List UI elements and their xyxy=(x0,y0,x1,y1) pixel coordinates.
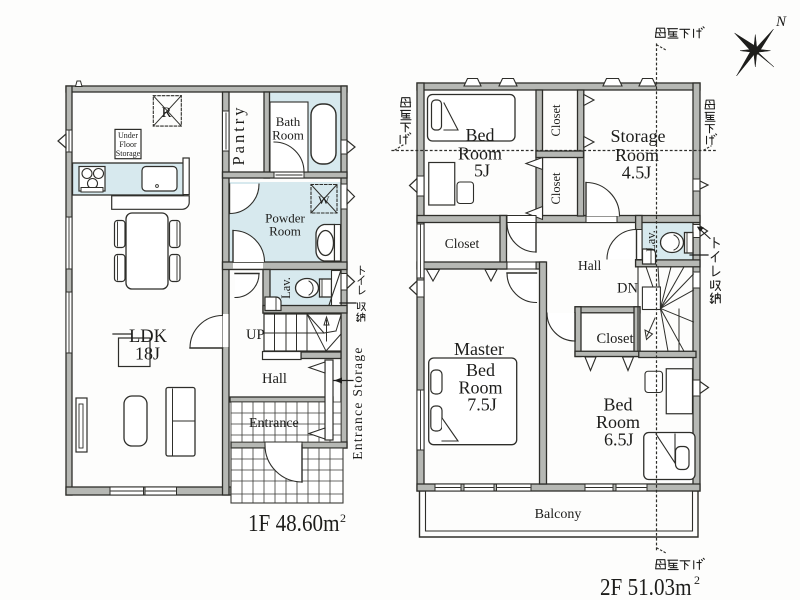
svg-text:6.5J: 6.5J xyxy=(604,430,634,450)
svg-text:DN: DN xyxy=(617,281,638,297)
svg-text:4.5J: 4.5J xyxy=(622,163,652,183)
svg-text:Storage: Storage xyxy=(116,149,141,158)
svg-text:1F 48.60m: 1F 48.60m xyxy=(248,510,340,537)
svg-text:Room: Room xyxy=(272,128,304,143)
svg-text:Lav.: Lav. xyxy=(279,277,293,299)
svg-text:Closet: Closet xyxy=(445,236,480,251)
svg-text:UP: UP xyxy=(246,327,265,343)
svg-text:R: R xyxy=(161,105,171,121)
svg-text:5J: 5J xyxy=(474,161,490,181)
svg-text:Under: Under xyxy=(118,131,138,140)
svg-text:18J: 18J xyxy=(135,344,160,364)
svg-text:2F 51.03m: 2F 51.03m xyxy=(600,574,692,600)
svg-text:Closet: Closet xyxy=(549,172,563,204)
svg-text:N: N xyxy=(775,14,787,30)
svg-text:Bed: Bed xyxy=(466,125,495,145)
svg-text:Entrance: Entrance xyxy=(249,416,299,431)
svg-text:W: W xyxy=(318,193,330,207)
svg-text:Pantry: Pantry xyxy=(229,104,248,165)
svg-text:2: 2 xyxy=(340,511,346,525)
svg-text:7.5J: 7.5J xyxy=(467,395,497,415)
svg-text:2: 2 xyxy=(694,573,700,587)
svg-text:Master: Master xyxy=(454,339,504,359)
svg-text:Closet: Closet xyxy=(549,104,563,136)
svg-text:Hall: Hall xyxy=(262,371,287,387)
svg-text:Entrance Storage: Entrance Storage xyxy=(350,346,365,459)
svg-text:Lav.: Lav. xyxy=(644,230,658,252)
svg-text:Closet: Closet xyxy=(596,331,633,347)
svg-text:Floor: Floor xyxy=(119,140,137,149)
svg-text:Balcony: Balcony xyxy=(535,507,582,522)
svg-text:Storage: Storage xyxy=(611,126,666,146)
svg-text:Room: Room xyxy=(269,224,301,239)
svg-text:Hall: Hall xyxy=(578,258,601,273)
